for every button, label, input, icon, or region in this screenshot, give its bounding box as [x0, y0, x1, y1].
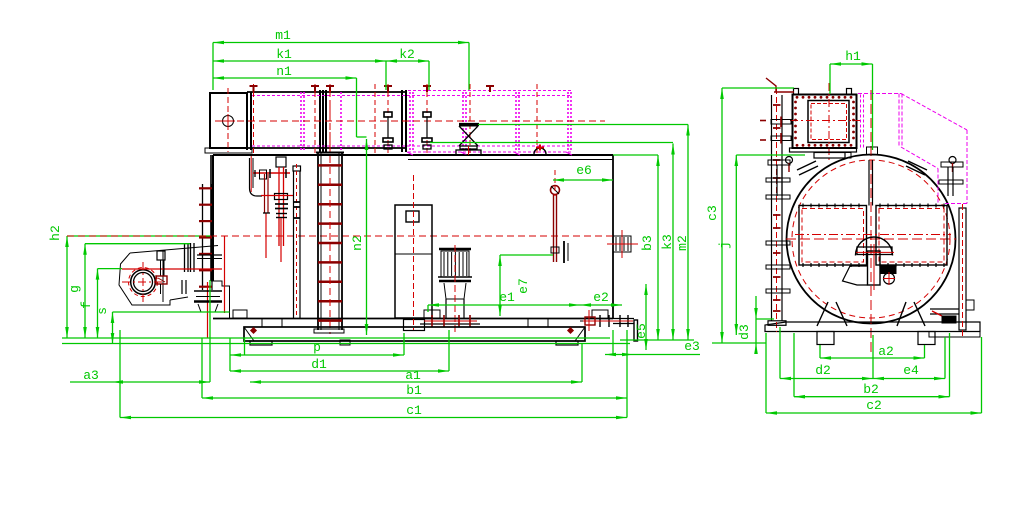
svg-text:n1: n1 [276, 64, 292, 79]
svg-text:j: j [717, 241, 732, 249]
svg-text:e3: e3 [684, 339, 700, 354]
svg-text:d3: d3 [737, 324, 752, 340]
svg-text:k3: k3 [660, 234, 675, 250]
svg-text:a1: a1 [405, 368, 421, 383]
svg-text:c3: c3 [705, 205, 720, 221]
svg-text:c2: c2 [866, 398, 882, 413]
svg-text:n2: n2 [350, 235, 365, 251]
svg-text:e7: e7 [516, 278, 531, 294]
svg-text:s: s [95, 307, 110, 315]
svg-text:b3: b3 [640, 235, 655, 251]
svg-text:m1: m1 [275, 28, 291, 43]
svg-text:k1: k1 [276, 47, 292, 62]
svg-text:k2: k2 [399, 47, 415, 62]
svg-text:d1: d1 [311, 357, 327, 372]
svg-text:c1: c1 [406, 403, 422, 418]
svg-text:h1: h1 [845, 49, 861, 64]
svg-text:b1: b1 [406, 383, 422, 398]
svg-text:e6: e6 [576, 163, 592, 178]
svg-text:a3: a3 [83, 368, 99, 383]
svg-text:e4: e4 [903, 363, 919, 378]
svg-text:e5: e5 [634, 323, 649, 339]
svg-text:e1: e1 [499, 290, 515, 305]
svg-text:g: g [67, 285, 82, 293]
svg-text:b2: b2 [863, 382, 879, 397]
svg-text:p: p [313, 340, 321, 355]
svg-text:h2: h2 [48, 225, 63, 241]
svg-text:f: f [79, 301, 94, 309]
svg-text:m2: m2 [675, 235, 690, 251]
svg-text:d2: d2 [815, 363, 831, 378]
svg-text:e2: e2 [593, 290, 609, 305]
svg-text:a2: a2 [878, 344, 894, 359]
